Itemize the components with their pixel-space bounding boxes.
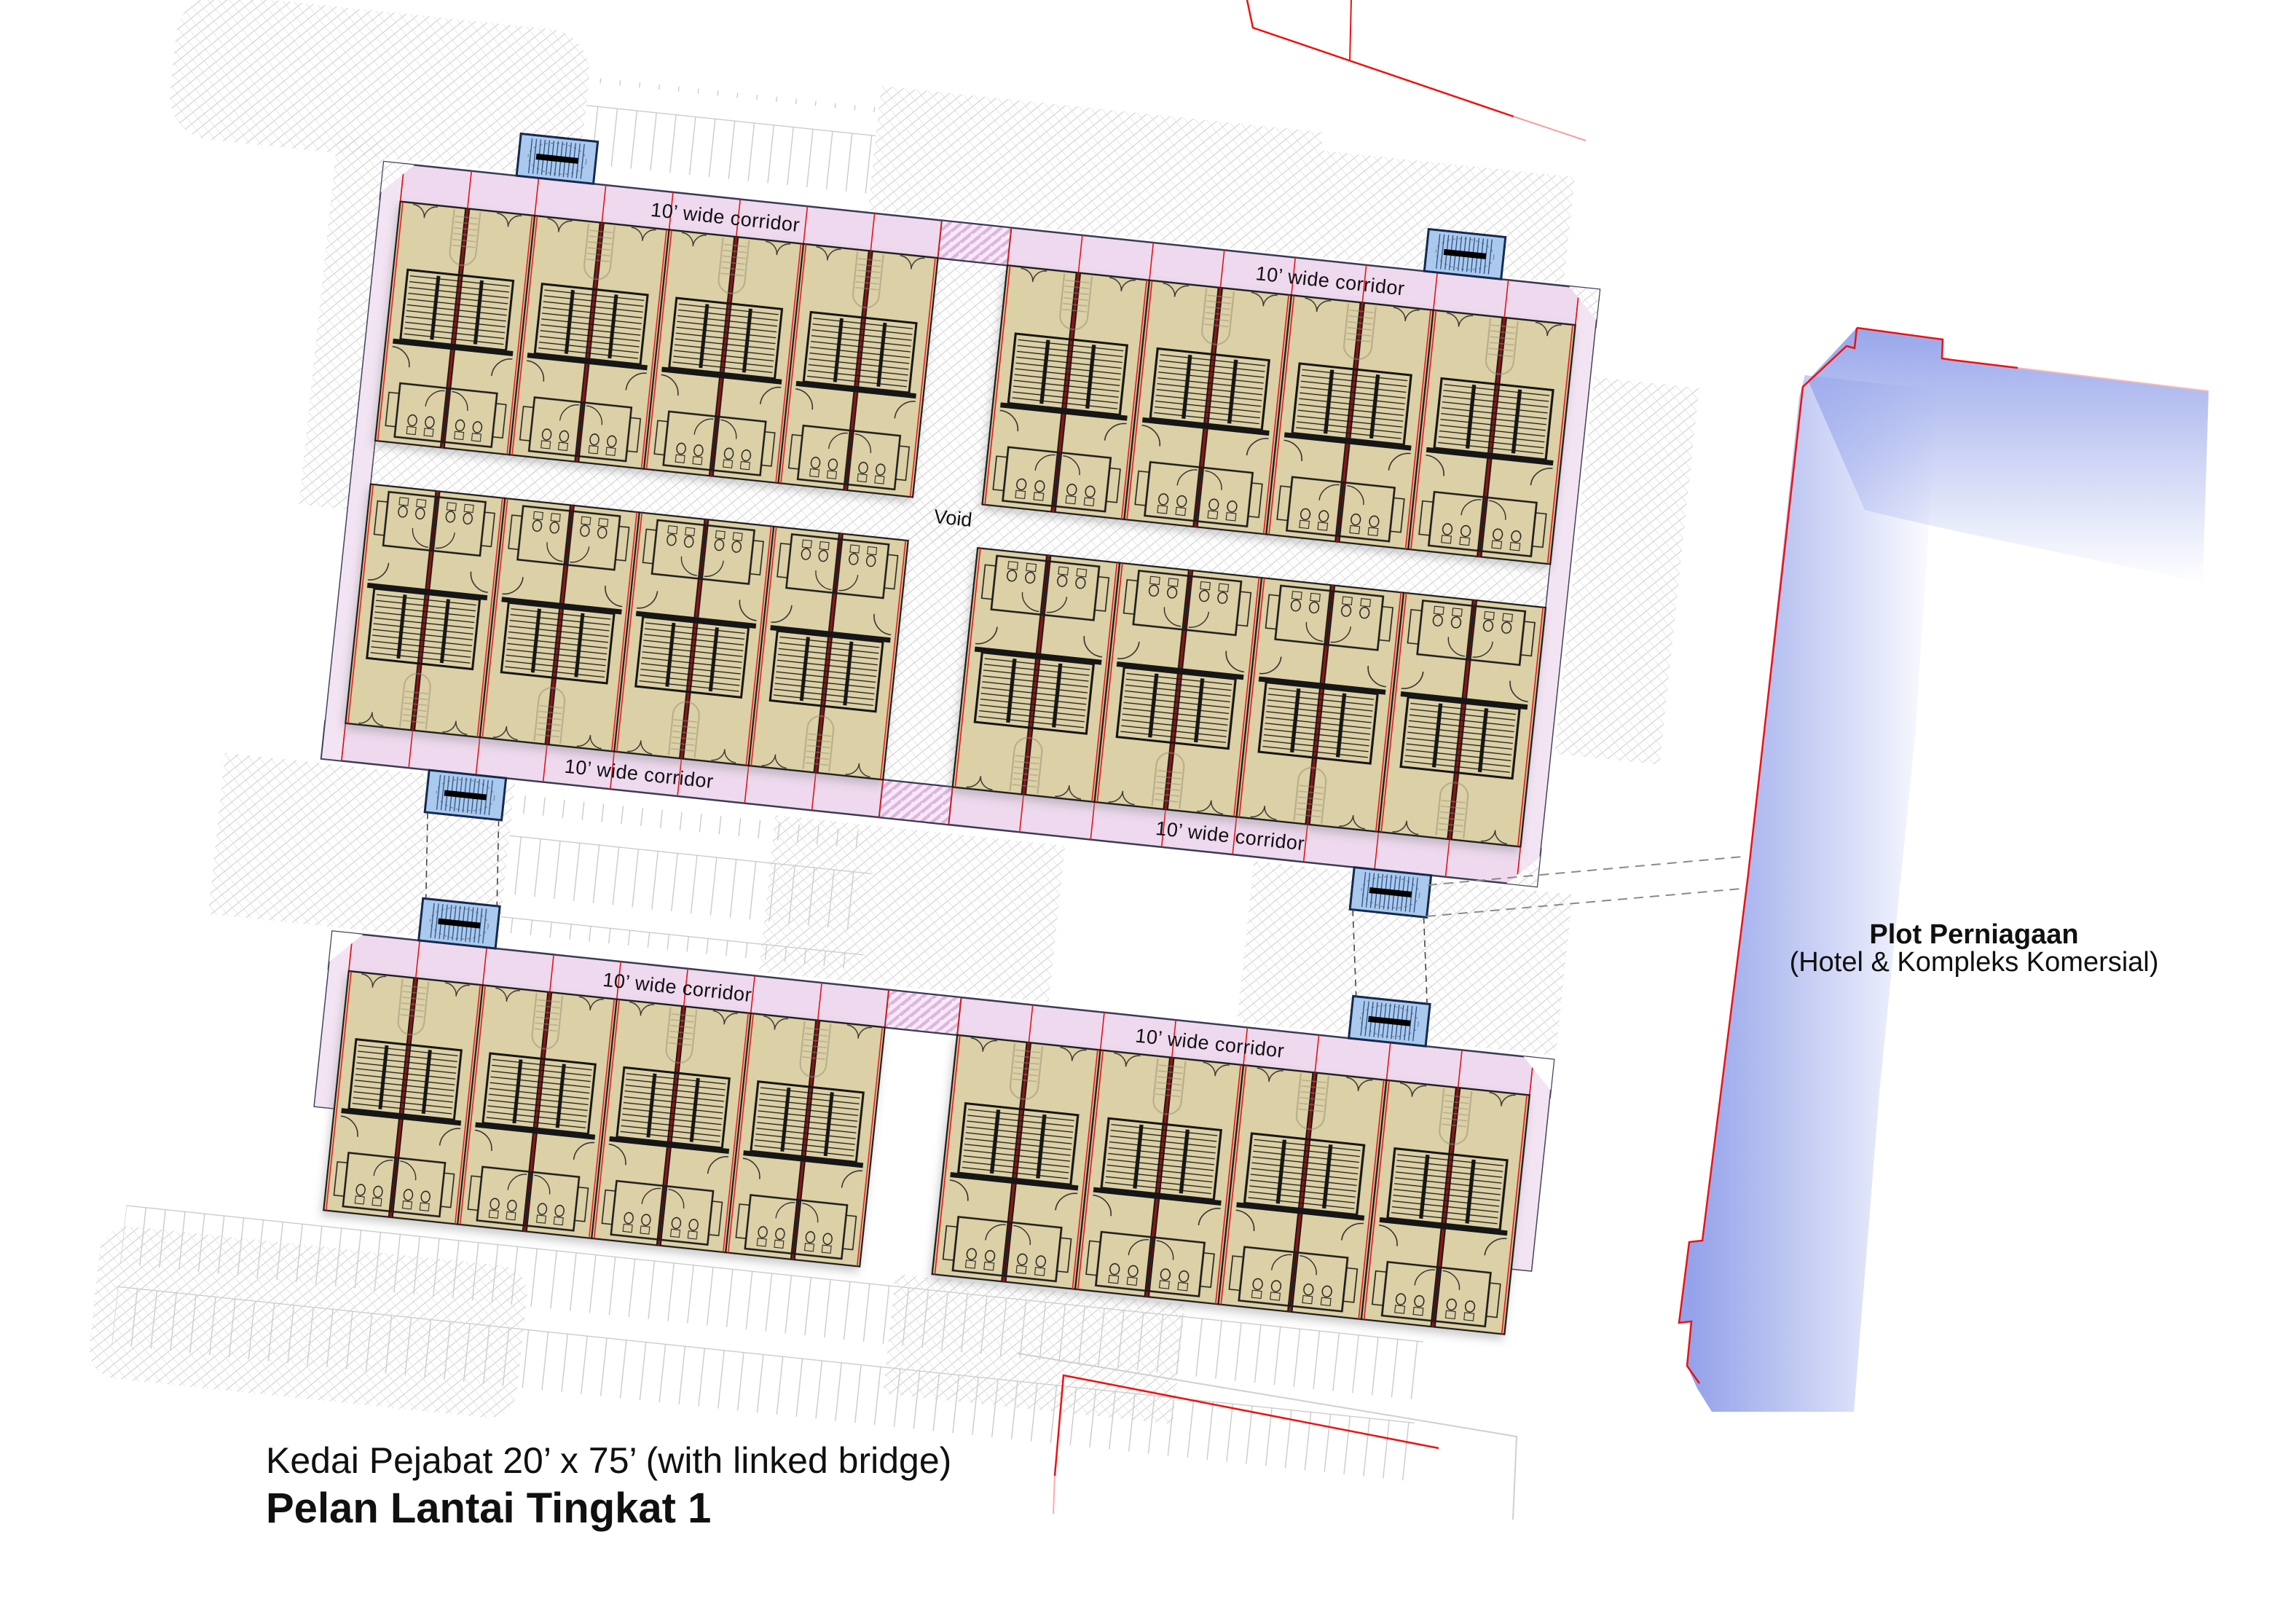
floor-plan-canvas: 10’ wide corridor 10’ wide corridor 10’ … [0, 0, 2296, 1623]
corridor-link [885, 990, 962, 1035]
red-property-line-faded [1053, 1476, 1055, 1514]
void-label: Void [933, 506, 973, 531]
shop-unit-pair [644, 229, 803, 483]
red-property-line [1247, 0, 1514, 117]
red-property-line-faded [1514, 117, 1586, 141]
red-property-line [1350, 0, 1351, 61]
corridor-link [937, 221, 1011, 266]
shop-unit-pair [953, 548, 1120, 802]
link-bridge-stair [1424, 229, 1505, 279]
shop-unit-pair [982, 265, 1149, 519]
shop-unit-pair [932, 1035, 1101, 1289]
shop-unit-pair [726, 1013, 884, 1267]
shop-unit-pair [1095, 563, 1262, 817]
shop-unit-pair [510, 216, 669, 469]
drawing-title: Pelan Lantai Tingkat 1 [266, 1485, 711, 1532]
shop-unit-pair [323, 971, 482, 1225]
shop-unit-pair [375, 202, 535, 455]
shop-unit-pair [591, 999, 750, 1253]
shop-unit-pair [1075, 1050, 1243, 1305]
shop-unit-pair [457, 985, 616, 1238]
shop-unit-pair [1361, 1080, 1530, 1335]
shop-unit-pair [1124, 280, 1291, 535]
shop-unit-pair [1378, 593, 1545, 847]
shop-unit-pair [614, 512, 774, 766]
plot-name: Plot Perniagaan [1869, 919, 2078, 950]
shop-unit-pair [779, 244, 938, 498]
shop-unit-pair [345, 484, 505, 738]
link-bridge-stair [1349, 996, 1430, 1046]
shop-unit-pair [1266, 295, 1433, 549]
floor-plan-drawing: 10’ wide corridor 10’ wide corridor 10’ … [0, 0, 2296, 1623]
link-bridge-stair [516, 134, 597, 184]
plot-description: (Hotel & Kompleks Komersial) [1790, 947, 2159, 978]
link-bridge-stair [419, 898, 500, 948]
commercial-plot: Plot Perniagaan (Hotel & Kompleks Komers… [1679, 328, 2209, 1412]
shop-unit-pair [1237, 578, 1404, 832]
shop-unit-pair [1218, 1065, 1386, 1319]
drawing-subtitle: Kedai Pejabat 20’ x 75’ (with linked bri… [266, 1440, 951, 1481]
shop-unit-pair [749, 527, 908, 780]
corridor-link [879, 779, 953, 825]
shop-unit-pair [1408, 310, 1575, 565]
link-bridge-stair [1350, 868, 1431, 918]
plot-area-left [1679, 375, 1938, 1412]
parking-area [759, 815, 1065, 1002]
shop-unit-pair [480, 498, 640, 752]
titles: Kedai Pejabat 20’ x 75’ (with linked bri… [266, 1440, 951, 1532]
site-plan: 10’ wide corridor 10’ wide corridor 10’ … [36, 0, 1723, 1533]
link-bridge-stair [425, 770, 506, 820]
